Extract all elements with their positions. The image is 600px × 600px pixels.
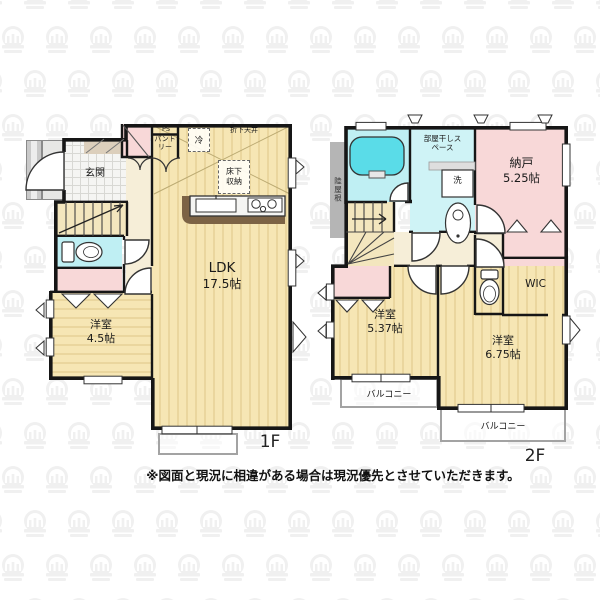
watermark-tile [284,68,314,104]
washer-label: 洗 [442,176,473,187]
balcony-2-label: バルコニー [481,419,526,432]
storeroom-label: 納戸 5.25帖 [475,156,568,185]
watermark-tile [306,552,336,588]
watermark-tile [482,552,512,588]
watermark-tile [0,420,6,456]
watermark-tile [108,0,138,16]
watermark-tile [0,0,6,16]
watermark-tile [240,508,270,544]
watermark-tile [20,420,50,456]
drying-space-label: 部屋干しスペース [410,134,475,153]
room-toilet-1f [56,236,122,268]
balcony-1-label: バルコニー [367,387,412,400]
watermark-tile [592,332,600,368]
watermark-tile [64,596,94,600]
watermark-tile [548,596,578,600]
watermark-tile [592,596,600,600]
watermark-tile [262,552,292,588]
watermark-tile [592,244,600,280]
watermark-tile [372,68,402,104]
watermark-tile [570,200,600,236]
watermark-tile [438,552,468,588]
watermark-tile [218,552,248,588]
watermark-tile [548,68,578,104]
underfloor-storage-label: 床下収納 [225,167,243,186]
fridge-label: 冷 [195,134,204,146]
watermark-tile [0,508,6,544]
watermark-tile [196,508,226,544]
watermark-tile [284,0,314,16]
watermark-tile [306,24,336,60]
closet-bedroom-1f [56,268,122,292]
watermark-tile [42,24,72,60]
watermark-tile [504,0,534,16]
bedroom1-2f-label: 洋室 5.37帖 [332,308,438,336]
watermark-tile [240,596,270,600]
watermark-tile [174,552,204,588]
watermark-tile [64,68,94,104]
terrace-step [158,433,238,455]
watermark-tile [592,0,600,16]
watermark-tile [0,156,6,192]
watermark-tile [86,376,116,412]
watermark-tile [372,0,402,16]
watermark-tile [416,68,446,104]
watermark-tile [504,68,534,104]
watermark-tile [592,68,600,104]
watermark-tile [152,508,182,544]
watermark-tile [504,508,534,544]
watermark-tile [196,596,226,600]
bedroom-1f-label: 洋室 4.5帖 [50,318,152,346]
watermark-tile [0,112,28,148]
watermark-tile [372,420,402,456]
watermark-tile [20,244,50,280]
pantry-label: パントリー [152,135,178,151]
watermark-tile [218,24,248,60]
room-bath [346,126,410,202]
watermark-tile [42,376,72,412]
watermark-tile [570,24,600,60]
watermark-tile [240,0,270,16]
watermark-tile [152,68,182,104]
watermark-tile [328,420,358,456]
watermark-tile [0,200,28,236]
floorplan-canvas: 陸屋根 バルコニー バルコニー [0,0,600,600]
watermark-tile [0,596,6,600]
watermark-tile [196,68,226,104]
watermark-tile [328,0,358,16]
watermark-tile [20,596,50,600]
wic-label: WIC [503,278,568,291]
floor1-label: 1F [240,432,300,453]
watermark-tile [152,0,182,16]
watermark-tile [42,464,72,500]
watermark-tile [0,376,28,412]
watermark-tile [152,596,182,600]
shoe-cabinet [84,138,126,154]
ldk-label: LDK 17.5帖 [152,260,292,292]
fridge-box: 冷 [188,128,210,152]
watermark-tile [20,0,50,16]
watermark-tile [0,24,28,60]
lowered-ceiling-label: 折下天井 [212,126,276,135]
watermark-tile [570,376,600,412]
watermark-tile [284,596,314,600]
entrance-label: 玄関 [64,168,126,181]
balcony-1: バルコニー [340,378,438,408]
watermark-tile [64,508,94,544]
bedroom2-2f-label: 洋室 6.75帖 [438,334,568,362]
watermark-tile [306,376,336,412]
disclaimer-text: ※図面と現況に相違がある場合は現況優先とさせていただきます。 [73,468,593,484]
hallway-2f [394,232,503,266]
watermark-tile [438,24,468,60]
watermark-tile [64,420,94,456]
flat-roof-label: 陸屋根 [333,177,344,203]
watermark-tile [526,24,556,60]
watermark-tile [394,24,424,60]
watermark-tile [592,156,600,192]
watermark-tile [130,552,160,588]
watermark-tile [240,68,270,104]
watermark-tile [372,508,402,544]
watermark-tile [350,552,380,588]
watermark-tile [196,0,226,16]
watermark-tile [20,332,50,368]
watermark-tile [460,68,490,104]
stairs-2f [346,202,394,266]
watermark-tile [372,596,402,600]
watermark-tile [0,244,6,280]
watermark-tile [0,68,6,104]
porch-landing [42,140,64,200]
watermark-tile [0,464,28,500]
watermark-tile [20,508,50,544]
watermark-tile [416,596,446,600]
watermark-tile [328,508,358,544]
watermark-tile [460,0,490,16]
watermark-tile [526,552,556,588]
watermark-tile [570,288,600,324]
watermark-tile [570,552,600,588]
watermark-tile [108,508,138,544]
watermark-tile [108,420,138,456]
watermark-tile [108,596,138,600]
watermark-tile [592,420,600,456]
watermark-tile [20,68,50,104]
watermark-tile [64,0,94,16]
watermark-tile [416,0,446,16]
watermark-tile [460,508,490,544]
watermark-tile [350,24,380,60]
watermark-tile [174,24,204,60]
watermark-tile [262,24,292,60]
porch-steps [26,140,42,200]
balcony-2: バルコニー [440,408,566,442]
pipe-space-label: PS [154,125,178,133]
watermark-tile [130,24,160,60]
watermark-tile [0,332,6,368]
closet-entrance [122,124,150,158]
watermark-tile [394,552,424,588]
floor2-label: 2F [505,446,565,467]
watermark-tile [570,112,600,148]
closet-bedroom1-2f [332,266,390,298]
closet-storeroom [503,233,568,258]
watermark-tile [416,508,446,544]
watermark-tile [328,68,358,104]
watermark-tile [284,508,314,544]
watermark-tile [460,596,490,600]
underfloor-storage-box: 床下収納 [218,160,250,194]
watermark-tile [548,508,578,544]
watermark-tile [548,0,578,16]
watermark-tile [86,552,116,588]
hallway-1f [126,158,152,295]
watermark-tile [592,508,600,544]
watermark-tile [328,596,358,600]
watermark-tile [42,552,72,588]
watermark-tile [108,68,138,104]
watermark-tile [504,596,534,600]
watermark-tile [0,288,28,324]
watermark-tile [86,24,116,60]
watermark-tile [482,24,512,60]
stairs-1f [56,202,128,236]
flat-roof-strip: 陸屋根 [330,142,346,238]
watermark-tile [0,552,28,588]
